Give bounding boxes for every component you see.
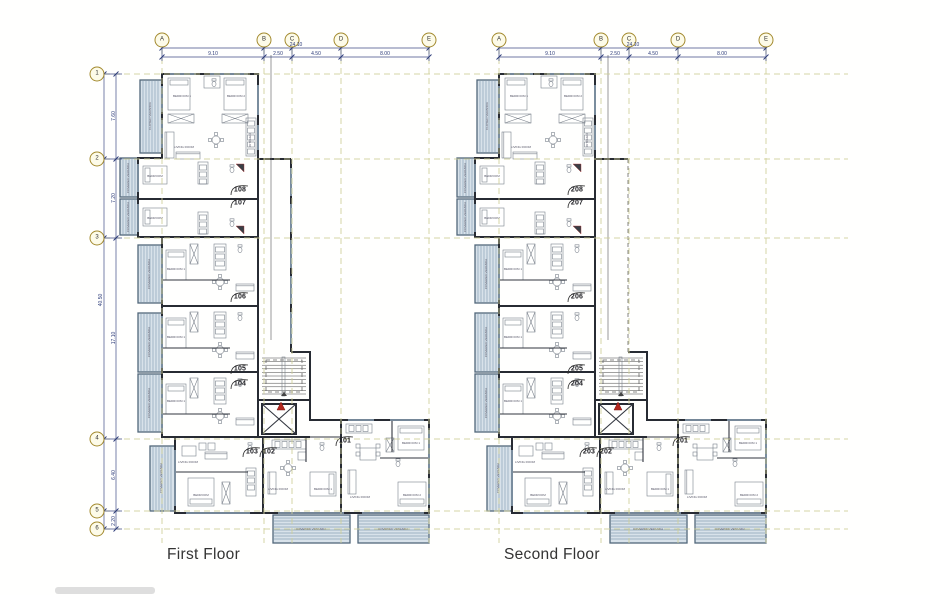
dim-top-total-2: 24.10 — [627, 42, 640, 48]
unit-number: 205 — [571, 366, 583, 373]
staircase — [599, 357, 643, 396]
room-label: COVERED VERANDA — [147, 327, 151, 357]
room-label: BEDROOM 1 — [651, 487, 669, 491]
room-label: LIVING ROOM — [515, 460, 536, 464]
room-label: BEDROOM 1 — [504, 267, 522, 271]
room-label: LIVING ROOM — [174, 145, 195, 149]
grid-row-bubble-4: 4 — [90, 432, 105, 447]
unit-number: 203 — [583, 449, 595, 456]
room-label: BEDROOM 2 — [227, 94, 245, 98]
room-label: BEDROOM 1 — [314, 487, 332, 491]
grid-col-label: A — [160, 37, 164, 43]
grid-col-label: A — [497, 37, 501, 43]
grid-col-bubble-b2: B — [594, 33, 609, 48]
room-label: COVERED VERANDA — [147, 388, 151, 418]
dim-top-seg: 9.10 — [208, 51, 218, 57]
room-label: BEDROOM 1 — [402, 441, 420, 445]
unit-number: 105 — [234, 366, 246, 373]
room-label: BEDROOM 2 — [403, 493, 421, 497]
floor-title-second: Second Floor — [504, 546, 600, 564]
floor-plan-second: BEDROOM 1BEDROOM 2LIVING ROOMKITCHENBEDR… — [457, 55, 766, 543]
unit-number: 206 — [571, 294, 583, 301]
room-label: BEDROOM 1 — [510, 94, 528, 98]
room-label: COVERED VERANDA — [463, 163, 467, 193]
room-label: LIVING ROOM — [268, 487, 289, 491]
dim-top-seg: 4.50 — [311, 51, 321, 57]
room-label: LIVING ROOM — [511, 145, 532, 149]
grid-row-label: 6 — [95, 526, 98, 532]
unit-number: 204 — [571, 381, 583, 388]
dim-top-seg: 4.50 — [648, 51, 658, 57]
room-label: COVERED VERANDA — [484, 327, 488, 357]
room-label: COVERED VERANDA — [126, 202, 130, 232]
grid-col-bubble-a2: A — [492, 33, 507, 48]
room-label: COVERED VERANDA — [147, 259, 151, 289]
unit-number: 201 — [676, 438, 688, 445]
room-label: BEDROOM 1 — [504, 399, 522, 403]
grid-row-label: 5 — [95, 508, 98, 514]
room-label: BEDROOM — [147, 174, 163, 178]
room-label: BEDROOM 2 — [740, 493, 758, 497]
dim-left-seg-4: 6.40 — [111, 470, 117, 480]
grid-row-bubble-3: 3 — [90, 231, 105, 246]
room-label: BEDROOM — [147, 216, 163, 220]
room-label: BEDROOM — [484, 174, 500, 178]
room-label: BEDROOM — [530, 493, 546, 497]
grid-row-bubble-2: 2 — [90, 152, 105, 167]
unit-number: 101 — [339, 438, 351, 445]
dimension-lines — [100, 44, 769, 532]
grid-row-label: 2 — [95, 156, 98, 162]
grid-col-bubble-a: A — [155, 33, 170, 48]
dim-top-total-1: 24.10 — [290, 42, 303, 48]
room-label: COVERED VERANDA — [463, 202, 467, 232]
grid-col-label: B — [262, 37, 266, 43]
unit-number: 106 — [234, 294, 246, 301]
room-label: LIVING ROOM — [350, 495, 371, 499]
dim-left-total: 40.50 — [98, 294, 104, 307]
room-label: BEDROOM 2 — [564, 94, 582, 98]
floor-plan-first: BEDROOM 1BEDROOM 2LIVING ROOMKITCHENBEDR… — [120, 55, 429, 543]
room-label: COVERED VERANDA — [484, 259, 488, 289]
room-label: COVERED VERANDA — [296, 527, 326, 531]
room-label: BEDROOM 1 — [504, 335, 522, 339]
grid-row-bubble-6: 6 — [90, 522, 105, 537]
grid-col-bubble-e: E — [422, 33, 437, 48]
grid-row-label: 3 — [95, 235, 98, 241]
room-label: COVERED VERANDA — [378, 527, 408, 531]
grid-col-label: E — [427, 37, 431, 43]
grid-col-bubble-d2: D — [671, 33, 686, 48]
room-label: BEDROOM 1 — [167, 399, 185, 403]
room-label: COVERED VERANDA — [126, 163, 130, 193]
room-label: CLOSED VERANDA — [148, 102, 152, 130]
dim-left-seg-1: 7.60 — [111, 111, 117, 121]
dim-top-seg: 8.00 — [380, 51, 390, 57]
room-label: LIVING ROOM — [178, 460, 199, 464]
unit-number: 208 — [571, 187, 583, 194]
room-label: COVERED VERANDA — [484, 388, 488, 418]
room-label: LIVING ROOM — [687, 495, 708, 499]
scrollbar-artifact — [55, 587, 155, 594]
staircase — [262, 357, 306, 396]
room-label: KITCHEN — [248, 133, 252, 146]
grid-row-bubble-1: 1 — [90, 67, 105, 82]
room-label: BEDROOM — [193, 493, 209, 497]
room-label: BEDROOM 1 — [167, 267, 185, 271]
dim-top-seg: 2.50 — [273, 51, 283, 57]
room-label: LIVING ROOM — [605, 487, 626, 491]
room-label: CLOSED VERANDA — [485, 102, 489, 130]
unit-number: 202 — [600, 449, 612, 456]
dim-top-seg: 8.00 — [717, 51, 727, 57]
grid-col-label: E — [764, 37, 768, 43]
dim-top-seg: 9.10 — [545, 51, 555, 57]
grid-col-label: D — [676, 37, 680, 43]
room-label: BEDROOM 1 — [167, 335, 185, 339]
room-label: KITCHEN — [585, 133, 589, 146]
unit-number: 108 — [234, 187, 246, 194]
floor-title-first: First Floor — [167, 546, 240, 564]
floor-plan-drawing: BEDROOM 1BEDROOM 2LIVING ROOMKITCHENBEDR… — [0, 0, 930, 595]
grid-col-bubble-d: D — [334, 33, 349, 48]
floor-plan-sheet: BEDROOM 1BEDROOM 2LIVING ROOMKITCHENBEDR… — [0, 0, 930, 595]
room-label: BEDROOM 1 — [739, 441, 757, 445]
unit-number: 102 — [263, 449, 275, 456]
grid-row-bubble-5: 5 — [90, 504, 105, 519]
grid-col-bubble-e2: E — [759, 33, 774, 48]
grid-row-label: 4 — [95, 436, 98, 442]
dim-left-seg-2: 7.20 — [111, 193, 117, 203]
unit-number: 107 — [234, 200, 246, 207]
dim-left-seg-5: 2.20 — [111, 516, 117, 526]
unit-number: 103 — [246, 449, 258, 456]
dim-left-seg-3: 17.10 — [111, 332, 117, 345]
grid-col-label: B — [599, 37, 603, 43]
grid-row-label: 1 — [95, 71, 98, 77]
dim-top-seg: 2.50 — [610, 51, 620, 57]
room-label: BEDROOM — [484, 216, 500, 220]
grid-col-bubble-b: B — [257, 33, 272, 48]
unit-number: 207 — [571, 200, 583, 207]
grid-col-label: D — [339, 37, 343, 43]
room-label: BEDROOM 1 — [173, 94, 191, 98]
unit-number: 104 — [234, 381, 246, 388]
